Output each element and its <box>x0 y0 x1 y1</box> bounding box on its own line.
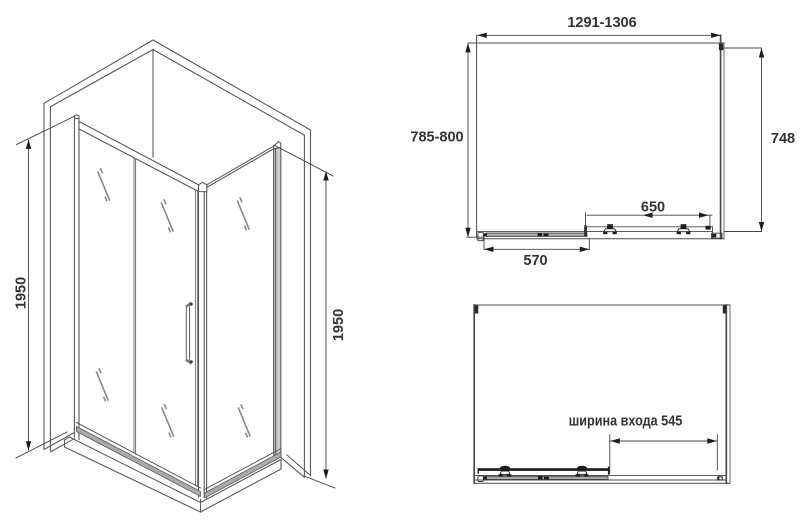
svg-text:ширина входа 545: ширина входа 545 <box>569 414 683 430</box>
svg-text:650: 650 <box>641 200 665 216</box>
svg-text:1950: 1950 <box>14 277 30 309</box>
svg-text:748: 748 <box>771 131 795 147</box>
svg-text:785-800: 785-800 <box>410 130 463 146</box>
svg-text:1291-1306: 1291-1306 <box>567 15 636 31</box>
svg-text:1950: 1950 <box>331 309 347 341</box>
svg-text:570: 570 <box>523 253 547 269</box>
